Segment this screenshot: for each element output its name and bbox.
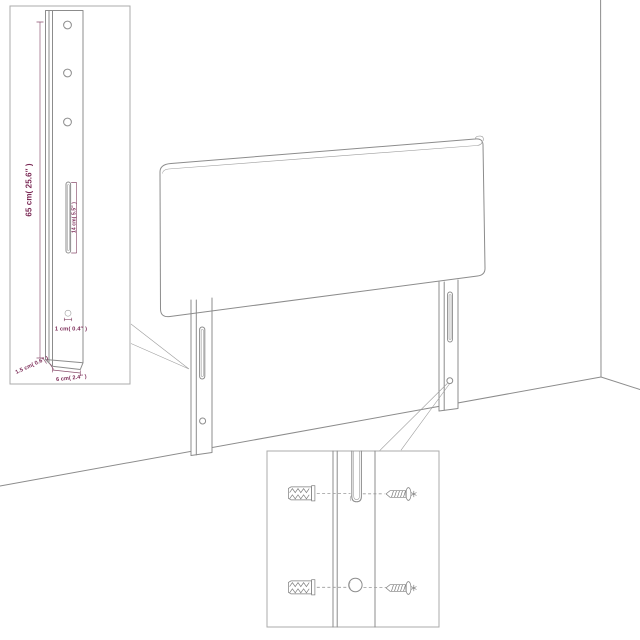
mounting-detail-inset — [267, 451, 439, 627]
headboard-panel — [160, 136, 485, 317]
left-leg-face — [191, 298, 212, 456]
leader-lines-leg-detail — [131, 324, 189, 369]
leg-detail-inset: 65 cm( 25.6″ ) 14 cm( 5.5″ ) 1 cm( 0.4″ … — [10, 6, 130, 384]
right-leg-face — [439, 280, 458, 411]
left-leg — [191, 298, 212, 456]
diagram-canvas: 65 cm( 25.6″ ) 14 cm( 5.5″ ) 1 cm( 0.4″ … — [0, 0, 640, 640]
leader-line — [131, 324, 189, 369]
label-slot-length: 14 cm( 5.5″ ) — [71, 202, 77, 233]
right-leg — [439, 280, 458, 411]
panel-top-edge-line — [163, 142, 483, 174]
floor-line-right — [601, 377, 640, 390]
label-leg-height: 65 cm( 25.6″ ) — [25, 163, 34, 216]
inset-frame — [267, 451, 439, 627]
label-hook-depth: 1 cm( 0.4″ ) — [55, 327, 87, 333]
assembly-diagram: 65 cm( 25.6″ ) 14 cm( 5.5″ ) 1 cm( 0.4″ … — [0, 0, 640, 640]
panel-front-face — [160, 139, 485, 317]
